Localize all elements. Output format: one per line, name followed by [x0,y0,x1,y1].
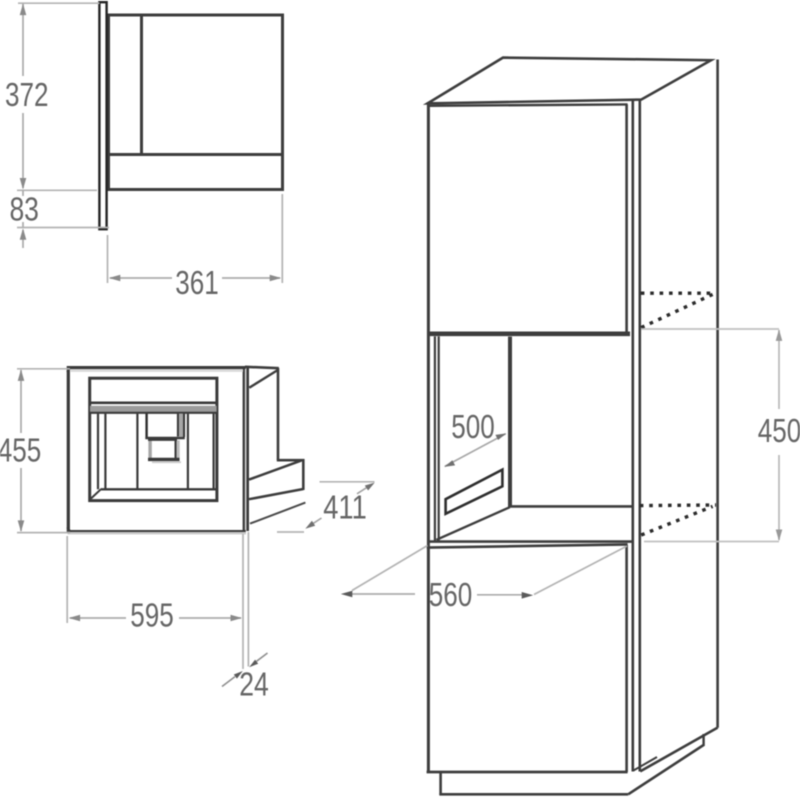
svg-text:500: 500 [451,408,495,445]
svg-text:411: 411 [323,489,367,526]
svg-text:361: 361 [175,264,219,301]
svg-text:560: 560 [429,576,473,613]
svg-text:450: 450 [758,412,800,449]
svg-text:455: 455 [0,432,41,469]
svg-text:24: 24 [239,665,269,702]
svg-text:83: 83 [9,191,39,228]
svg-text:595: 595 [130,596,174,633]
svg-text:372: 372 [5,76,49,113]
